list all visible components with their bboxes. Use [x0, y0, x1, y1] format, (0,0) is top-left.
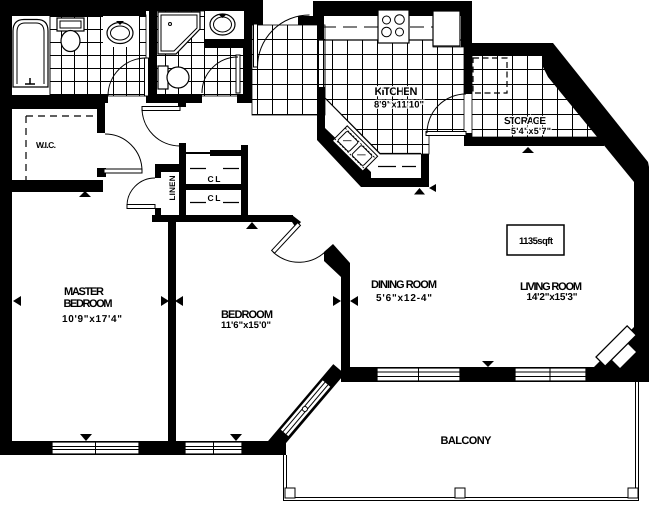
svg-text:14'2"x15'3": 14'2"x15'3" — [527, 292, 578, 303]
svg-text:DINING ROOM: DINING ROOM — [371, 279, 437, 291]
svg-text:10'9"x17'4": 10'9"x17'4" — [62, 314, 122, 325]
svg-text:5'6"x12-4": 5'6"x12-4" — [376, 293, 432, 304]
svg-text:5'4"x5'7": 5'4"x5'7" — [511, 126, 551, 136]
svg-text:W.I.C.: W.I.C. — [36, 140, 56, 150]
svg-text:BEDROOM: BEDROOM — [64, 298, 113, 310]
svg-text:BALCONY: BALCONY — [441, 435, 493, 447]
svg-text:11'6"x15'0": 11'6"x15'0" — [221, 320, 271, 331]
svg-text:KITCHEN: KITCHEN — [375, 86, 418, 98]
svg-text:MASTER: MASTER — [64, 286, 104, 298]
svg-text:LINEN: LINEN — [168, 175, 177, 200]
svg-text:8'9"x11'10": 8'9"x11'10" — [374, 100, 424, 111]
svg-text:1135sqft: 1135sqft — [519, 236, 554, 247]
